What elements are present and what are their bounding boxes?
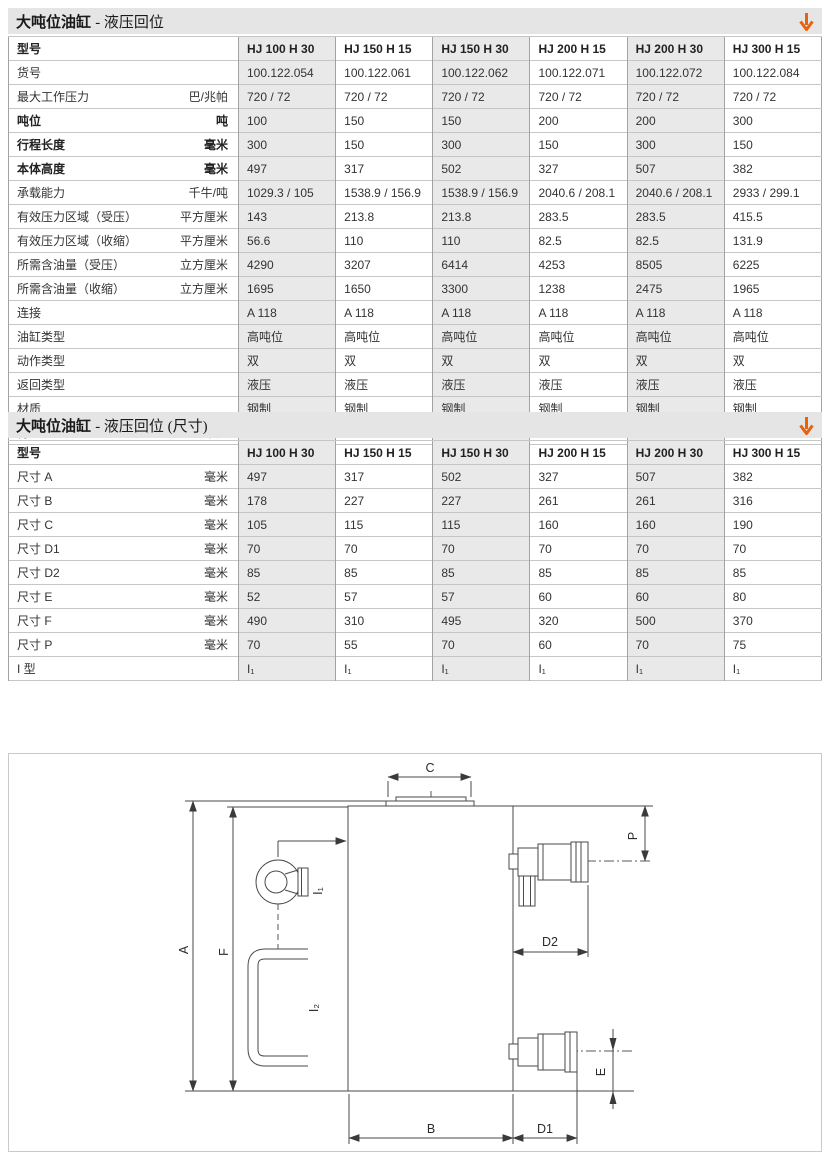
- value-cell: 507: [627, 465, 724, 489]
- column-header-hj-200-h-15: HJ 200 H 15: [530, 37, 627, 61]
- value-cell: 720 / 72: [627, 85, 724, 109]
- value-cell: 227: [336, 489, 433, 513]
- value-cell: 316: [724, 489, 821, 513]
- value-cell: 高吨位: [239, 325, 336, 349]
- value-cell: I₁: [530, 657, 627, 681]
- row-label-cell: 连接: [9, 301, 239, 325]
- row-label: 有效压力区域（收缩）: [17, 232, 137, 249]
- table-row: 尺寸 P毫米705570607075: [9, 633, 822, 657]
- value-cell: 2040.6 / 208.1: [627, 181, 724, 205]
- column-header-model: 型号: [9, 441, 239, 465]
- value-cell: 70: [627, 537, 724, 561]
- value-cell: 70: [627, 633, 724, 657]
- value-cell: 100.122.084: [724, 61, 821, 85]
- value-cell: 327: [530, 157, 627, 181]
- row-label-cell: 油缸类型: [9, 325, 239, 349]
- value-cell: 283.5: [530, 205, 627, 229]
- row-unit: 毫米: [204, 612, 236, 629]
- row-unit: 平方厘米: [180, 232, 236, 249]
- value-cell: 382: [724, 157, 821, 181]
- row-label: 有效压力区域（受压）: [17, 208, 137, 225]
- value-cell: 1965: [724, 277, 821, 301]
- value-cell: 双: [530, 349, 627, 373]
- column-header-hj-150-h-30: HJ 150 H 30: [433, 37, 530, 61]
- port-label-i1: I₁: [311, 887, 325, 895]
- row-label: 动作类型: [17, 352, 65, 369]
- value-cell: 110: [336, 229, 433, 253]
- value-cell: 高吨位: [336, 325, 433, 349]
- value-cell: 213.8: [336, 205, 433, 229]
- dim-label-p: P: [626, 832, 640, 840]
- catalog-page: 大吨位油缸 - 液压回位 型号HJ 100 H 30HJ 150 H 15HJ …: [0, 0, 830, 1159]
- value-cell: 56.6: [239, 229, 336, 253]
- column-header-hj-300-h-15: HJ 300 H 15: [724, 37, 821, 61]
- value-cell: 261: [627, 489, 724, 513]
- row-label-cell: 尺寸 D2毫米: [9, 561, 239, 585]
- row-unit: 毫米: [204, 564, 236, 581]
- value-cell: 75: [724, 633, 821, 657]
- value-cell: A 118: [433, 301, 530, 325]
- table-row: 尺寸 A毫米497317502327507382: [9, 465, 822, 489]
- value-cell: A 118: [336, 301, 433, 325]
- row-label: 尺寸 E: [17, 588, 52, 605]
- value-cell: 6225: [724, 253, 821, 277]
- value-cell: 52: [239, 585, 336, 609]
- value-cell: 高吨位: [724, 325, 821, 349]
- dimensions-table: 型号HJ 100 H 30HJ 150 H 15HJ 150 H 30HJ 20…: [8, 440, 822, 681]
- download-icon[interactable]: [799, 416, 814, 435]
- value-cell: 100.122.071: [530, 61, 627, 85]
- value-cell: 110: [433, 229, 530, 253]
- table1-title: 大吨位油缸 - 液压回位: [16, 11, 164, 32]
- table-row: 吨位吨100150150200200300: [9, 109, 822, 133]
- value-cell: A 118: [724, 301, 821, 325]
- table2-title: 大吨位油缸 - 液压回位 (尺寸): [16, 415, 208, 436]
- row-label: 返回类型: [17, 376, 65, 393]
- value-cell: 320: [530, 609, 627, 633]
- row-unit: 巴/兆帕: [189, 88, 236, 105]
- row-unit: 平方厘米: [180, 208, 236, 225]
- value-cell: 85: [724, 561, 821, 585]
- value-cell: 100.122.072: [627, 61, 724, 85]
- value-cell: 720 / 72: [239, 85, 336, 109]
- value-cell: 261: [530, 489, 627, 513]
- value-cell: 3207: [336, 253, 433, 277]
- table2-title-sub: - 液压回位 (尺寸): [95, 419, 208, 435]
- row-label: 所需含油量（收缩）: [17, 280, 125, 297]
- row-label-cell: 尺寸 A毫米: [9, 465, 239, 489]
- value-cell: 720 / 72: [530, 85, 627, 109]
- value-cell: 178: [239, 489, 336, 513]
- column-header-model: 型号: [9, 37, 239, 61]
- column-header-hj-100-h-30: HJ 100 H 30: [239, 37, 336, 61]
- value-cell: 1538.9 / 156.9: [336, 181, 433, 205]
- value-cell: 490: [239, 609, 336, 633]
- value-cell: 100: [239, 109, 336, 133]
- row-label-cell: 吨位吨: [9, 109, 239, 133]
- value-cell: 高吨位: [433, 325, 530, 349]
- value-cell: I₁: [433, 657, 530, 681]
- dim-label-d1: D1: [537, 1122, 553, 1136]
- value-cell: 82.5: [627, 229, 724, 253]
- value-cell: 327: [530, 465, 627, 489]
- column-header-hj-150-h-15: HJ 150 H 15: [336, 441, 433, 465]
- row-label: 尺寸 A: [17, 468, 52, 485]
- row-label-cell: 行程长度毫米: [9, 133, 239, 157]
- row-label-cell: 尺寸 D1毫米: [9, 537, 239, 561]
- value-cell: 液压: [239, 373, 336, 397]
- value-cell: A 118: [627, 301, 724, 325]
- row-unit: 毫米: [204, 636, 236, 653]
- value-cell: 4290: [239, 253, 336, 277]
- value-cell: 1650: [336, 277, 433, 301]
- value-cell: 70: [433, 537, 530, 561]
- value-cell: 57: [336, 585, 433, 609]
- cylinder-body: [348, 806, 513, 1091]
- value-cell: 382: [724, 465, 821, 489]
- value-cell: 150: [336, 133, 433, 157]
- row-label: 承载能力: [17, 184, 65, 201]
- row-label-cell: I 型: [9, 657, 239, 681]
- table-row: 油缸类型高吨位高吨位高吨位高吨位高吨位高吨位: [9, 325, 822, 349]
- value-cell: 80: [724, 585, 821, 609]
- dim-label-c: C: [425, 761, 434, 775]
- row-label-cell: 货号: [9, 61, 239, 85]
- row-label: 尺寸 F: [17, 612, 52, 629]
- value-cell: A 118: [239, 301, 336, 325]
- column-header-hj-150-h-15: HJ 150 H 15: [336, 37, 433, 61]
- value-cell: 143: [239, 205, 336, 229]
- row-label-cell: 尺寸 F毫米: [9, 609, 239, 633]
- row-label-cell: 动作类型: [9, 349, 239, 373]
- value-cell: A 118: [530, 301, 627, 325]
- value-cell: 双: [239, 349, 336, 373]
- technical-drawing-panel: A F C P D2 E B D1 I₁ I₂: [8, 753, 822, 1152]
- value-cell: 300: [627, 133, 724, 157]
- value-cell: 200: [530, 109, 627, 133]
- row-label: I 型: [17, 660, 36, 677]
- row-label: 尺寸 P: [17, 636, 52, 653]
- value-cell: 150: [433, 109, 530, 133]
- row-label-cell: 所需含油量（受压）立方厘米: [9, 253, 239, 277]
- table-row: 所需含油量（收缩）立方厘米169516503300123824751965: [9, 277, 822, 301]
- column-header-hj-200-h-30: HJ 200 H 30: [627, 441, 724, 465]
- row-unit: 毫米: [204, 540, 236, 557]
- cylinder-drawing: A F C P D2 E B D1 I₁ I₂: [9, 754, 821, 1151]
- value-cell: 115: [336, 513, 433, 537]
- download-icon[interactable]: [799, 12, 814, 31]
- table-row: 有效压力区域（受压）平方厘米143213.8213.8283.5283.5415…: [9, 205, 822, 229]
- table-row: 尺寸 D1毫米707070707070: [9, 537, 822, 561]
- row-label-cell: 返回类型: [9, 373, 239, 397]
- table1-title-sub: - 液压回位: [95, 15, 164, 31]
- value-cell: 1029.3 / 105: [239, 181, 336, 205]
- column-header-hj-100-h-30: HJ 100 H 30: [239, 441, 336, 465]
- row-label-cell: 最大工作压力巴/兆帕: [9, 85, 239, 109]
- value-cell: 150: [336, 109, 433, 133]
- value-cell: 6414: [433, 253, 530, 277]
- value-cell: 100.122.054: [239, 61, 336, 85]
- value-cell: 高吨位: [627, 325, 724, 349]
- value-cell: 液压: [336, 373, 433, 397]
- table-row: 承载能力千牛/吨1029.3 / 1051538.9 / 156.91538.9…: [9, 181, 822, 205]
- lifting-eye: [256, 860, 308, 904]
- table-row: 返回类型液压液压液压液压液压液压: [9, 373, 822, 397]
- value-cell: 115: [433, 513, 530, 537]
- row-label: 油缸类型: [17, 328, 65, 345]
- value-cell: 227: [433, 489, 530, 513]
- carry-handle: [253, 954, 308, 1061]
- table2-title-main: 大吨位油缸: [16, 418, 91, 435]
- value-cell: 213.8: [433, 205, 530, 229]
- dim-e-arrow-bottom: [610, 1091, 617, 1104]
- value-cell: 300: [433, 133, 530, 157]
- row-label-cell: 所需含油量（收缩）立方厘米: [9, 277, 239, 301]
- bottom-coupler: [509, 1032, 577, 1072]
- value-cell: 3300: [433, 277, 530, 301]
- value-cell: 190: [724, 513, 821, 537]
- row-label: 尺寸 C: [17, 516, 53, 533]
- value-cell: 4253: [530, 253, 627, 277]
- value-cell: 105: [239, 513, 336, 537]
- table-header-row: 型号HJ 100 H 30HJ 150 H 15HJ 150 H 30HJ 20…: [9, 37, 822, 61]
- row-label: 尺寸 D1: [17, 540, 60, 557]
- value-cell: 2475: [627, 277, 724, 301]
- column-header-hj-200-h-15: HJ 200 H 15: [530, 441, 627, 465]
- value-cell: 70: [336, 537, 433, 561]
- value-cell: 双: [627, 349, 724, 373]
- value-cell: 502: [433, 465, 530, 489]
- value-cell: 497: [239, 157, 336, 181]
- row-label: 货号: [17, 64, 41, 81]
- download-arrow-icon: [799, 12, 814, 31]
- table-row: 行程长度毫米300150300150300150: [9, 133, 822, 157]
- value-cell: 415.5: [724, 205, 821, 229]
- row-unit: 千牛/吨: [189, 184, 236, 201]
- row-unit: 毫米: [204, 492, 236, 509]
- row-label: 行程长度: [17, 136, 65, 153]
- row-unit: 毫米: [204, 516, 236, 533]
- table-row: 有效压力区域（收缩）平方厘米56.611011082.582.5131.9: [9, 229, 822, 253]
- row-unit: 吨: [216, 112, 236, 129]
- value-cell: 370: [724, 609, 821, 633]
- table1-title-main: 大吨位油缸: [16, 14, 91, 31]
- value-cell: 82.5: [530, 229, 627, 253]
- row-unit: 毫米: [204, 136, 236, 153]
- row-unit: 立方厘米: [180, 256, 236, 273]
- dim-label-b: B: [427, 1122, 435, 1136]
- value-cell: 160: [627, 513, 724, 537]
- table-row: 最大工作压力巴/兆帕720 / 72720 / 72720 / 72720 / …: [9, 85, 822, 109]
- dimensions-table-section: 大吨位油缸 - 液压回位 (尺寸) 型号HJ 100 H 30HJ 150 H …: [8, 412, 822, 681]
- value-cell: 160: [530, 513, 627, 537]
- table-row: 所需含油量（受压）立方厘米429032076414425385056225: [9, 253, 822, 277]
- table-row: 货号100.122.054100.122.061100.122.062100.1…: [9, 61, 822, 85]
- value-cell: 双: [433, 349, 530, 373]
- value-cell: 310: [336, 609, 433, 633]
- value-cell: 2040.6 / 208.1: [530, 181, 627, 205]
- value-cell: 150: [530, 133, 627, 157]
- value-cell: 500: [627, 609, 724, 633]
- value-cell: 100.122.062: [433, 61, 530, 85]
- table-row: 尺寸 B毫米178227227261261316: [9, 489, 822, 513]
- table-row: 连接A 118A 118A 118A 118A 118A 118: [9, 301, 822, 325]
- table-row: 动作类型双双双双双双: [9, 349, 822, 373]
- column-header-hj-150-h-30: HJ 150 H 30: [433, 441, 530, 465]
- row-label: 尺寸 B: [17, 492, 52, 509]
- value-cell: 70: [239, 537, 336, 561]
- value-cell: 60: [627, 585, 724, 609]
- value-cell: 1695: [239, 277, 336, 301]
- port-label-i2: I₂: [307, 1004, 321, 1012]
- spec-table-section: 大吨位油缸 - 液压回位 型号HJ 100 H 30HJ 150 H 15HJ …: [8, 8, 822, 445]
- row-unit: 毫米: [204, 588, 236, 605]
- row-unit: 立方厘米: [180, 280, 236, 297]
- value-cell: 60: [530, 633, 627, 657]
- row-label: 本体高度: [17, 160, 65, 177]
- value-cell: 70: [724, 537, 821, 561]
- value-cell: 502: [433, 157, 530, 181]
- row-unit: 毫米: [204, 468, 236, 485]
- row-label-cell: 尺寸 C毫米: [9, 513, 239, 537]
- dim-label-a: A: [177, 945, 191, 954]
- dim-label-f: F: [217, 948, 231, 956]
- value-cell: 100.122.061: [336, 61, 433, 85]
- value-cell: 85: [627, 561, 724, 585]
- value-cell: 85: [433, 561, 530, 585]
- value-cell: 317: [336, 157, 433, 181]
- row-label: 吨位: [17, 112, 41, 129]
- value-cell: 720 / 72: [724, 85, 821, 109]
- value-cell: 70: [433, 633, 530, 657]
- value-cell: 497: [239, 465, 336, 489]
- saddle-base: [386, 801, 474, 806]
- top-coupler: [509, 842, 588, 906]
- row-label-cell: 本体高度毫米: [9, 157, 239, 181]
- value-cell: 1238: [530, 277, 627, 301]
- value-cell: 720 / 72: [336, 85, 433, 109]
- row-label-cell: 有效压力区域（受压）平方厘米: [9, 205, 239, 229]
- download-arrow-icon: [799, 416, 814, 435]
- value-cell: 60: [530, 585, 627, 609]
- table2-title-bar: 大吨位油缸 - 液压回位 (尺寸): [8, 412, 822, 438]
- table-row: 尺寸 F毫米490310495320500370: [9, 609, 822, 633]
- table-header-row: 型号HJ 100 H 30HJ 150 H 15HJ 150 H 30HJ 20…: [9, 441, 822, 465]
- row-label-cell: 尺寸 P毫米: [9, 633, 239, 657]
- value-cell: 720 / 72: [433, 85, 530, 109]
- value-cell: 300: [724, 109, 821, 133]
- value-cell: I₁: [627, 657, 724, 681]
- value-cell: 131.9: [724, 229, 821, 253]
- value-cell: 70: [530, 537, 627, 561]
- value-cell: 55: [336, 633, 433, 657]
- value-cell: 2933 / 299.1: [724, 181, 821, 205]
- value-cell: 双: [724, 349, 821, 373]
- row-unit: 毫米: [204, 160, 236, 177]
- value-cell: 200: [627, 109, 724, 133]
- value-cell: 高吨位: [530, 325, 627, 349]
- value-cell: 8505: [627, 253, 724, 277]
- value-cell: 70: [239, 633, 336, 657]
- value-cell: 317: [336, 465, 433, 489]
- column-header-hj-200-h-30: HJ 200 H 30: [627, 37, 724, 61]
- value-cell: 液压: [724, 373, 821, 397]
- value-cell: 507: [627, 157, 724, 181]
- value-cell: 283.5: [627, 205, 724, 229]
- value-cell: 85: [336, 561, 433, 585]
- row-label: 所需含油量（受压）: [17, 256, 125, 273]
- value-cell: 495: [433, 609, 530, 633]
- table-row: 尺寸 E毫米525757606080: [9, 585, 822, 609]
- column-header-hj-300-h-15: HJ 300 H 15: [724, 441, 821, 465]
- table-row: 本体高度毫米497317502327507382: [9, 157, 822, 181]
- row-label: 最大工作压力: [17, 88, 89, 105]
- spec-table: 型号HJ 100 H 30HJ 150 H 15HJ 150 H 30HJ 20…: [8, 36, 822, 445]
- value-cell: 液压: [530, 373, 627, 397]
- value-cell: 1538.9 / 156.9: [433, 181, 530, 205]
- row-label: 连接: [17, 304, 41, 321]
- table1-title-bar: 大吨位油缸 - 液压回位: [8, 8, 822, 34]
- value-cell: 150: [724, 133, 821, 157]
- row-label-cell: 有效压力区域（收缩）平方厘米: [9, 229, 239, 253]
- table-row: I 型I₁I₁I₁I₁I₁I₁: [9, 657, 822, 681]
- value-cell: 液压: [627, 373, 724, 397]
- row-label-cell: 承载能力千牛/吨: [9, 181, 239, 205]
- value-cell: 300: [239, 133, 336, 157]
- row-label: 尺寸 D2: [17, 564, 60, 581]
- value-cell: I₁: [724, 657, 821, 681]
- table-row: 尺寸 D2毫米858585858585: [9, 561, 822, 585]
- value-cell: 液压: [433, 373, 530, 397]
- value-cell: I₁: [336, 657, 433, 681]
- row-label-cell: 尺寸 E毫米: [9, 585, 239, 609]
- dim-label-d2: D2: [542, 935, 558, 949]
- value-cell: 57: [433, 585, 530, 609]
- row-label-cell: 尺寸 B毫米: [9, 489, 239, 513]
- value-cell: 双: [336, 349, 433, 373]
- value-cell: 85: [530, 561, 627, 585]
- dim-e-arrow-top: [610, 1038, 617, 1051]
- value-cell: I₁: [239, 657, 336, 681]
- dim-label-e: E: [594, 1068, 608, 1076]
- table-row: 尺寸 C毫米105115115160160190: [9, 513, 822, 537]
- value-cell: 85: [239, 561, 336, 585]
